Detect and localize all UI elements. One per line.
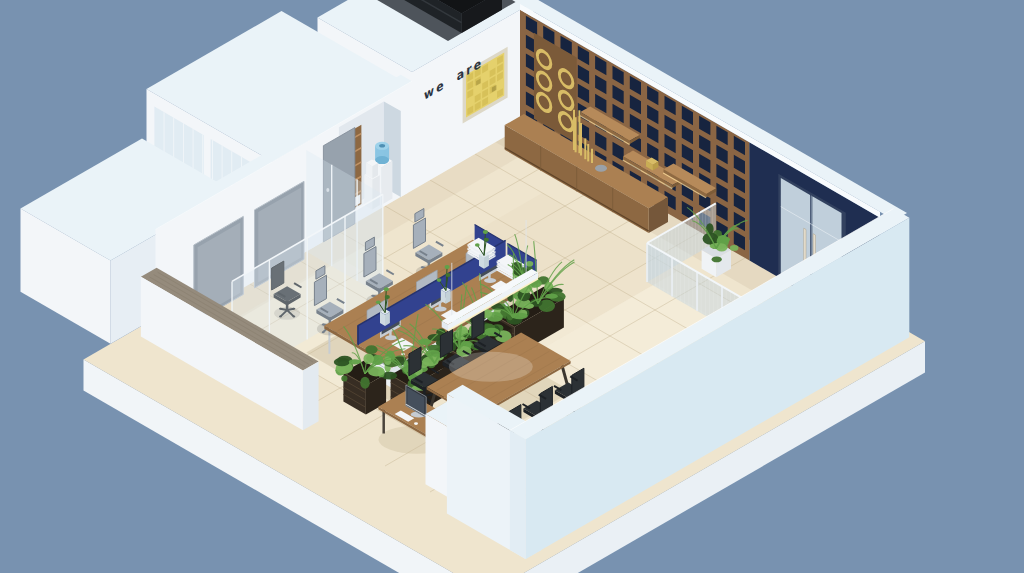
planter-hedge-part (349, 359, 361, 364)
desk-plants-part (376, 300, 381, 304)
office-isometric-render: we are (0, 0, 1024, 573)
desk-monitors-part (385, 335, 397, 340)
desk-plants-part (484, 238, 489, 242)
desk-plants-part (483, 230, 488, 234)
candles-part (595, 165, 607, 172)
meeting-table-part (449, 352, 533, 382)
planter-hedge-part (341, 375, 347, 381)
entry-plant-part (730, 245, 739, 251)
task-chairs-part (421, 266, 424, 268)
desk-monitors-part (435, 307, 447, 312)
render-canvas: we are (0, 0, 1024, 573)
planter-hedge-part (365, 345, 377, 354)
desk-plants-part (385, 295, 390, 299)
water-cooler-part (379, 144, 385, 148)
desk-plants-part (526, 261, 533, 267)
desk-plants-part (445, 273, 450, 277)
entry-plant-part (712, 257, 722, 263)
scene-geometry (0, 0, 1024, 573)
desk-plants-part (384, 287, 389, 291)
nw-wall-part (401, 72, 412, 197)
meeting-chairs-left-part (430, 394, 433, 396)
desk-plants-part (437, 278, 442, 282)
planter-hedge-part (360, 377, 370, 389)
desk-plants-part (475, 243, 480, 247)
task-chairs-part (322, 331, 325, 333)
se-wall-part (510, 430, 526, 559)
reception-keyboard-part (414, 422, 418, 425)
desk-divider-part (357, 325, 359, 346)
planter-hedge-part (363, 354, 373, 364)
task-chairs-part (371, 295, 374, 297)
task-chairs-part (322, 323, 325, 325)
stone-cap-wall-part (303, 361, 319, 430)
desk-plants-part (445, 265, 450, 269)
planter-hedge-part (334, 358, 350, 367)
desk-monitors-part (484, 278, 496, 283)
